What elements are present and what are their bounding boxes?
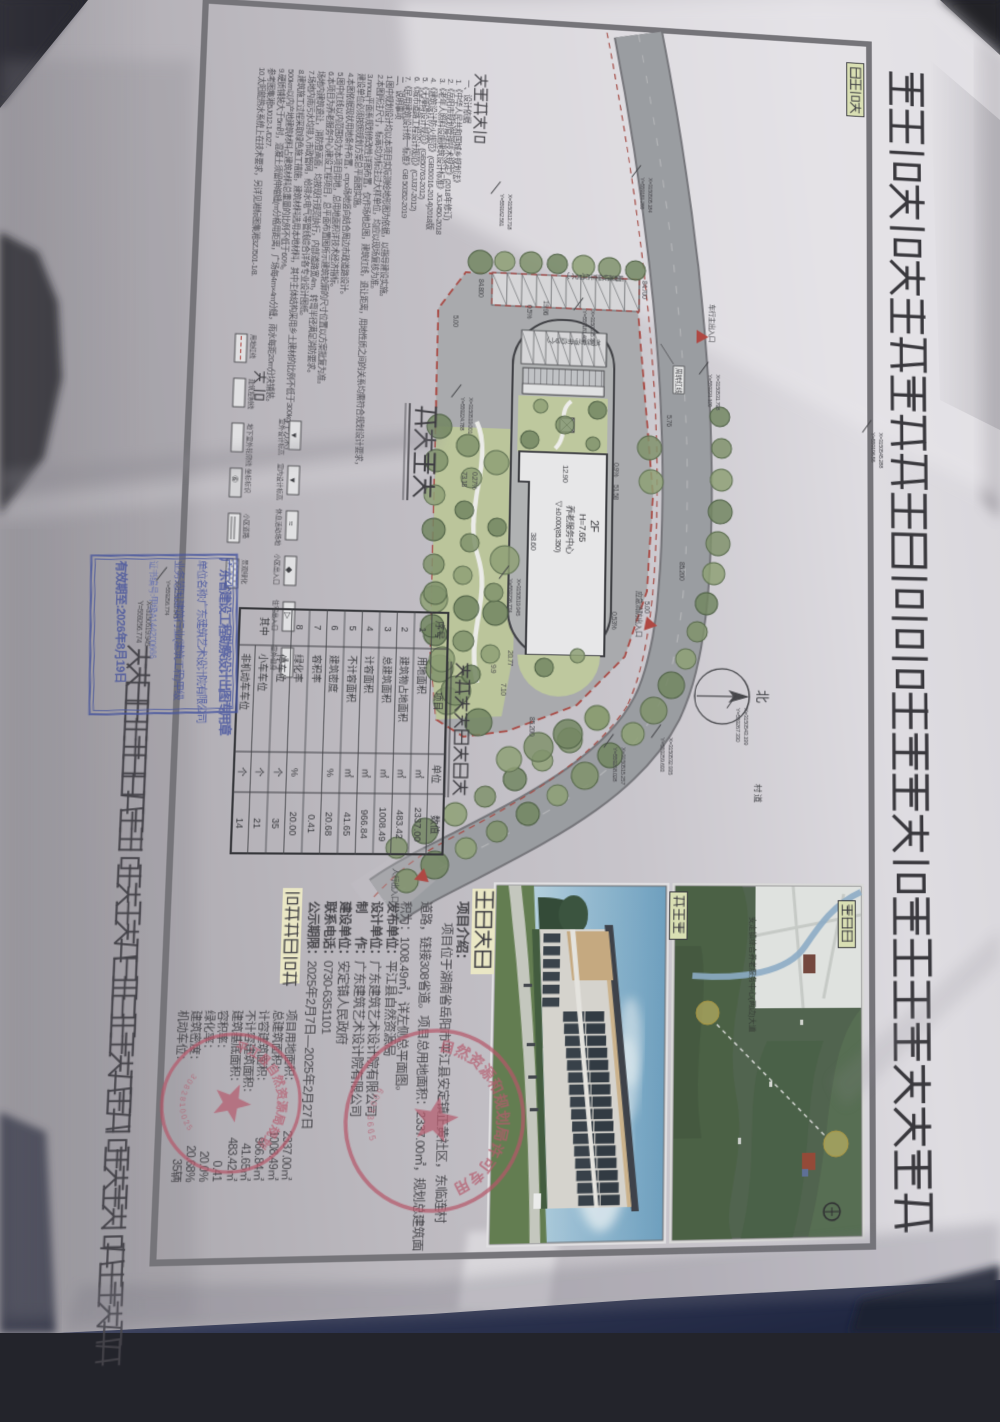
svg-text:20.00: 20.00 — [287, 812, 299, 836]
svg-text:非机动车车位: 非机动车车位 — [238, 653, 252, 710]
svg-text:0.41: 0.41 — [305, 814, 317, 833]
svg-text:小区出入口: 小区出入口 — [272, 554, 282, 585]
svg-text:小车车位: 小车车位 — [256, 654, 270, 692]
svg-text:计容面积: 计容面积 — [363, 656, 376, 694]
svg-text:个: 个 — [271, 767, 283, 777]
svg-text:14: 14 — [233, 818, 245, 829]
svg-text:休息活动场地: 休息活动场地 — [273, 508, 283, 545]
svg-text:停车位: 停车位 — [275, 654, 288, 683]
svg-text:用地面积: 用地面积 — [415, 657, 428, 695]
svg-text:8: 8 — [294, 624, 305, 630]
svg-text:地下室外轮廓线: 地下室外轮廓线 — [244, 423, 254, 466]
svg-text:用地红线: 用地红线 — [248, 334, 258, 359]
svg-text:2337.00: 2337.00 — [411, 807, 423, 842]
svg-text:序号: 序号 — [434, 621, 446, 640]
svg-text:㎡: ㎡ — [378, 769, 389, 779]
svg-text:35: 35 — [269, 818, 281, 829]
svg-text:个: 个 — [253, 767, 265, 777]
svg-text:个: 个 — [235, 767, 247, 777]
svg-text:3: 3 — [382, 626, 393, 632]
svg-text:建筑物占地面积: 建筑物占地面积 — [397, 656, 411, 722]
svg-text:坐标标识: 坐标标识 — [243, 468, 253, 493]
svg-text:㎡: ㎡ — [360, 768, 371, 778]
svg-text:其中: 其中 — [258, 617, 271, 636]
svg-text:㎡: ㎡ — [395, 769, 406, 779]
svg-text:北: 北 — [755, 690, 770, 704]
svg-text:景观绿化: 景观绿化 — [240, 559, 250, 584]
svg-text:小区道路: 小区道路 — [241, 514, 251, 539]
svg-text:5: 5 — [347, 626, 358, 632]
svg-text:㎡: ㎡ — [342, 768, 353, 778]
svg-text:⑥: ⑥ — [230, 475, 240, 483]
svg-text:1008.49: 1008.49 — [376, 807, 388, 842]
svg-text:1: 1 — [417, 627, 428, 633]
svg-text:6: 6 — [329, 625, 340, 631]
svg-text:▼: ▼ — [289, 431, 299, 439]
svg-text:室外设计标高: 室外设计标高 — [277, 418, 287, 455]
svg-text:%: % — [289, 768, 300, 777]
svg-text:不计容面积: 不计容面积 — [345, 655, 359, 703]
svg-text:%: % — [325, 769, 336, 778]
svg-text:绿化率: 绿化率 — [292, 654, 305, 683]
svg-text:4: 4 — [365, 626, 376, 632]
svg-text:966.84: 966.84 — [358, 809, 370, 839]
svg-text:总建筑面积: 总建筑面积 — [380, 656, 393, 703]
svg-text:41.65: 41.65 — [341, 812, 353, 836]
svg-text:3 0 8 2 8 1 0 0 2 5: 3 0 8 2 8 1 0 0 2 5 — [176, 1072, 198, 1133]
svg-text:6 0 0 2 3 6 6 5: 6 0 0 2 3 6 6 5 — [365, 1086, 386, 1142]
svg-text:数值: 数值 — [429, 815, 442, 834]
svg-text:▼: ▼ — [287, 476, 297, 484]
svg-text:2: 2 — [399, 627, 410, 633]
svg-text:㎡: ㎡ — [413, 769, 424, 779]
svg-text:483.42: 483.42 — [394, 810, 406, 839]
svg-text:项目: 项目 — [432, 692, 443, 711]
svg-text:室内设计标高: 室内设计标高 — [275, 463, 285, 500]
svg-text:20.68: 20.68 — [323, 812, 335, 836]
svg-text:21: 21 — [251, 818, 263, 829]
svg-text:建筑密度: 建筑密度 — [327, 655, 340, 693]
svg-text:单位: 单位 — [430, 765, 443, 784]
svg-text:7: 7 — [312, 625, 323, 631]
svg-text:容积率: 容积率 — [310, 655, 323, 684]
